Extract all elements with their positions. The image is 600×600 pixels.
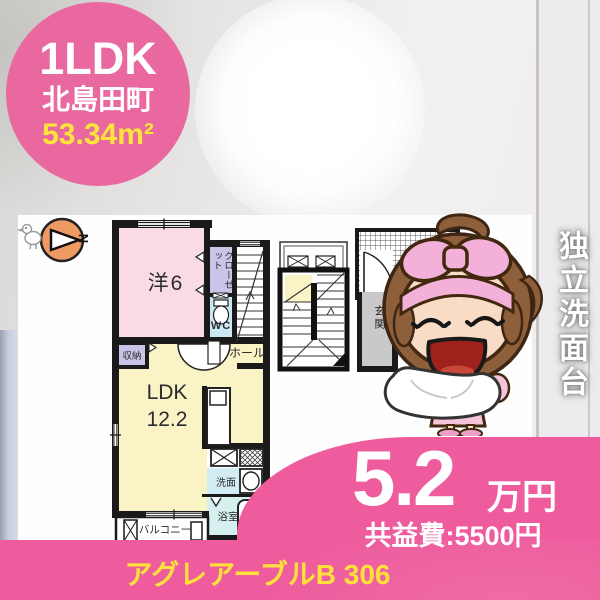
balcony-label: バルコニー	[134, 522, 196, 537]
mascot-character	[377, 212, 547, 436]
rent-amount: 5.2	[352, 438, 454, 518]
mascot-towel	[385, 368, 500, 418]
kitchen-counter	[207, 388, 230, 445]
building-name: アグレアーブルB 306	[0, 553, 515, 593]
storage-label: 収納	[117, 348, 147, 362]
ldk-label: LDK 12.2	[125, 379, 209, 433]
property-badge: 1LDK 北島田町 53.34m²	[6, 2, 190, 186]
washroom-label: 洗面	[209, 474, 243, 489]
north-label: N	[76, 234, 91, 243]
closet-label: クローゼット	[209, 251, 233, 289]
ldk-size: 12.2	[125, 406, 209, 433]
badge-layout: 1LDK	[39, 35, 157, 83]
common-fee: 共益費:5500円	[340, 514, 566, 553]
feature-banner: 独立洗面台	[548, 230, 592, 415]
rent-unit: 万円	[487, 469, 557, 520]
toilet-label: WC	[206, 320, 236, 332]
ldk-name: LDK	[125, 379, 209, 406]
western-room-label: 洋6	[128, 267, 204, 297]
bird-doodle	[19, 225, 41, 250]
badge-location: 北島田町	[42, 83, 154, 117]
hall-label: ホール	[226, 344, 268, 361]
badge-area: 53.34m²	[42, 117, 154, 153]
common-stairwell	[280, 242, 347, 369]
listing-flyer: 洋6 クローゼット WC ホール 収納 LDK 12.2 洗面 浴室 バルコニー…	[0, 0, 600, 600]
